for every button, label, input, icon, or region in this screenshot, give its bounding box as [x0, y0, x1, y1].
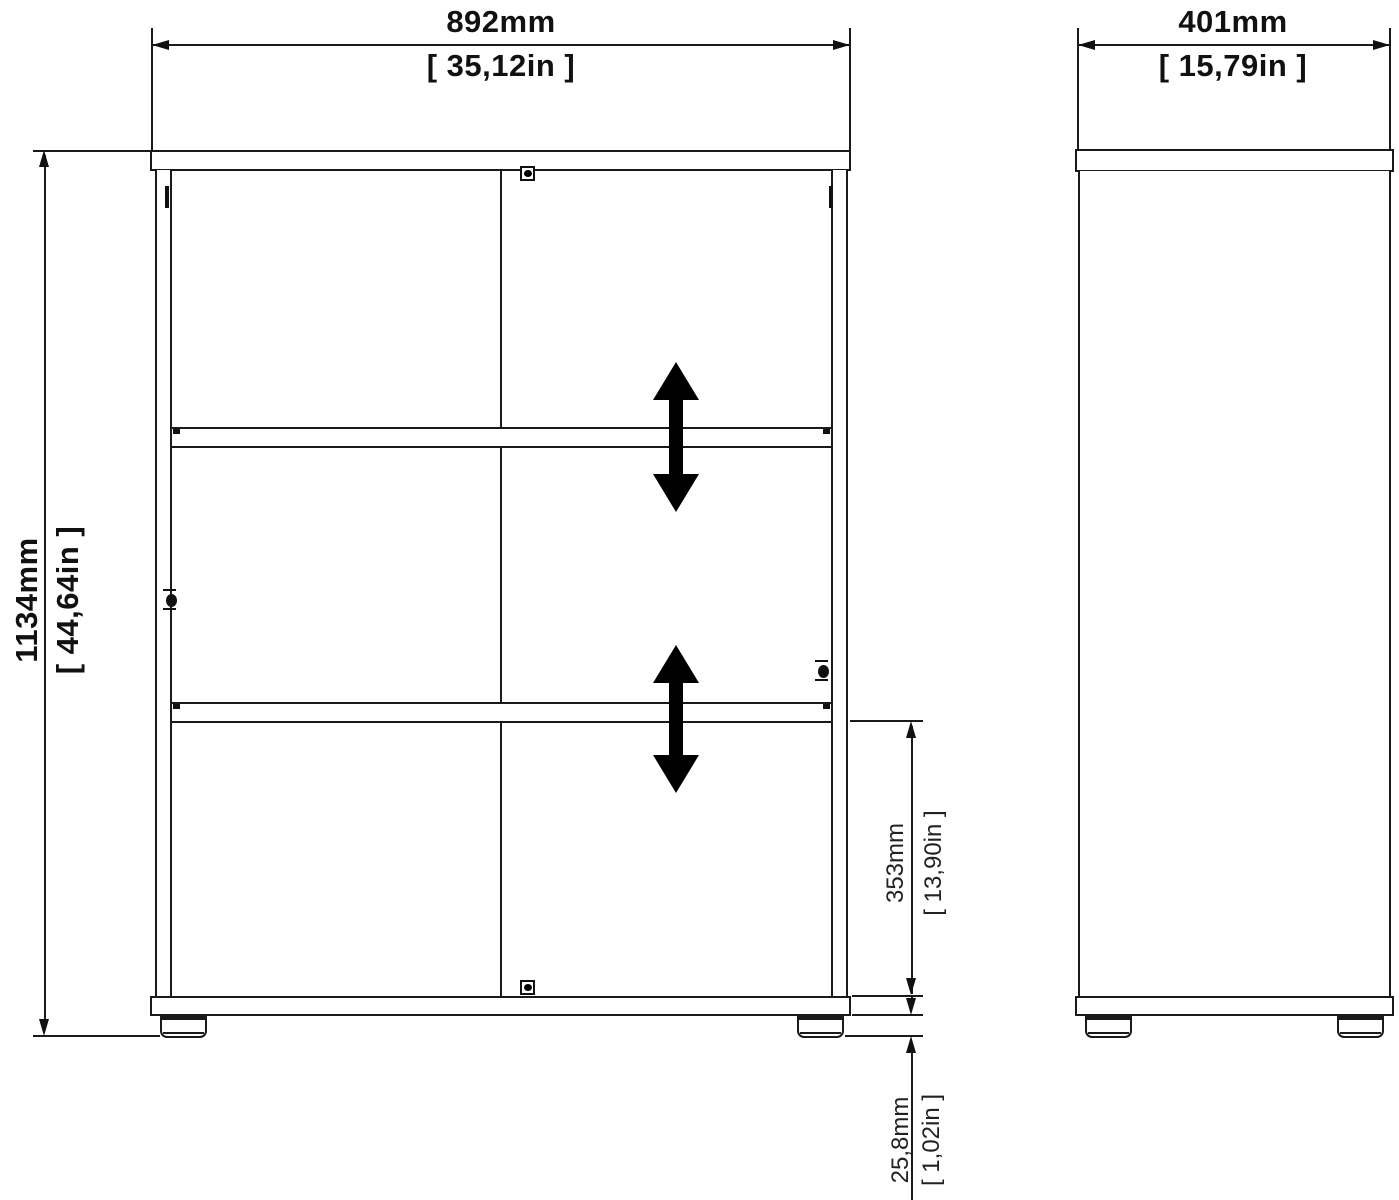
width-dimension-mm-label: 892mm: [321, 4, 681, 40]
shelf-support-mark: [823, 704, 830, 709]
foot-line: [1088, 1032, 1129, 1034]
extension-line: [33, 1035, 160, 1037]
side-panel-left: [155, 170, 172, 998]
bottom-panel: [150, 996, 851, 1016]
shelf-pin-icon: [166, 594, 177, 607]
foot: [1085, 1016, 1132, 1038]
shelf-support-mark: [173, 429, 180, 434]
furniture-dimension-drawing: 892mm [ 35,12in ] 1134mm [ 44,64in ]: [0, 0, 1399, 1200]
foot-line: [163, 1032, 204, 1034]
depth-dimension-in-label: [ 15,79in ]: [1053, 48, 1399, 84]
arrow-head-down: [653, 474, 699, 512]
dimension-arrow: [833, 40, 850, 50]
dimension-line: [152, 44, 850, 46]
foot: [160, 1016, 207, 1038]
drill-mark: [165, 186, 169, 208]
shelf-pin-mark: [163, 589, 176, 591]
bottom-panel: [1075, 996, 1394, 1016]
dimension-arrow: [152, 40, 169, 50]
shelf-pin-mark: [815, 679, 828, 681]
shelf-support-mark: [823, 429, 830, 434]
extension-line: [33, 150, 151, 152]
height-dimension-in-label: [ 44,64in ]: [50, 440, 86, 760]
foot: [1337, 1016, 1384, 1038]
foot-line: [800, 1032, 841, 1034]
cam-lock-icon: [520, 980, 535, 995]
shelf-spacing-in-label: [ 13,90in ]: [916, 703, 952, 1023]
top-panel: [150, 150, 851, 171]
width-dimension-in-label: [ 35,12in ]: [321, 48, 681, 84]
arrow-head-up: [653, 645, 699, 683]
dimension-arrow: [39, 150, 49, 167]
cam-lock-dot: [524, 170, 532, 177]
height-dimension-mm-label: 1134mm: [9, 440, 45, 760]
top-panel: [1075, 149, 1394, 172]
shelf-pin-mark: [815, 660, 828, 662]
arrow-shaft: [669, 397, 683, 477]
shelf-pin-mark: [163, 608, 176, 610]
side-panel: [1078, 171, 1391, 997]
depth-dimension-mm-label: 401mm: [1053, 4, 1399, 40]
shelf-upper: [172, 427, 831, 448]
shelf-spacing-mm-label: 353mm: [878, 703, 914, 1023]
arrow-head-up: [653, 362, 699, 400]
cam-lock-icon: [520, 166, 535, 181]
dimension-line: [1078, 44, 1390, 46]
arrow-head-down: [653, 755, 699, 793]
arrow-shaft: [669, 680, 683, 756]
foot-height-in-label: [ 1,02in ]: [914, 980, 950, 1200]
foot: [797, 1016, 844, 1038]
shelf-pin-icon: [818, 665, 829, 678]
drill-mark: [829, 186, 833, 208]
shelf-lower: [172, 702, 831, 723]
shelf-support-mark: [173, 704, 180, 709]
dimension-arrow: [39, 1019, 49, 1036]
cam-lock-dot: [524, 984, 532, 991]
side-panel-right: [831, 170, 848, 998]
foot-line: [1340, 1032, 1381, 1034]
center-divider: [500, 170, 502, 998]
